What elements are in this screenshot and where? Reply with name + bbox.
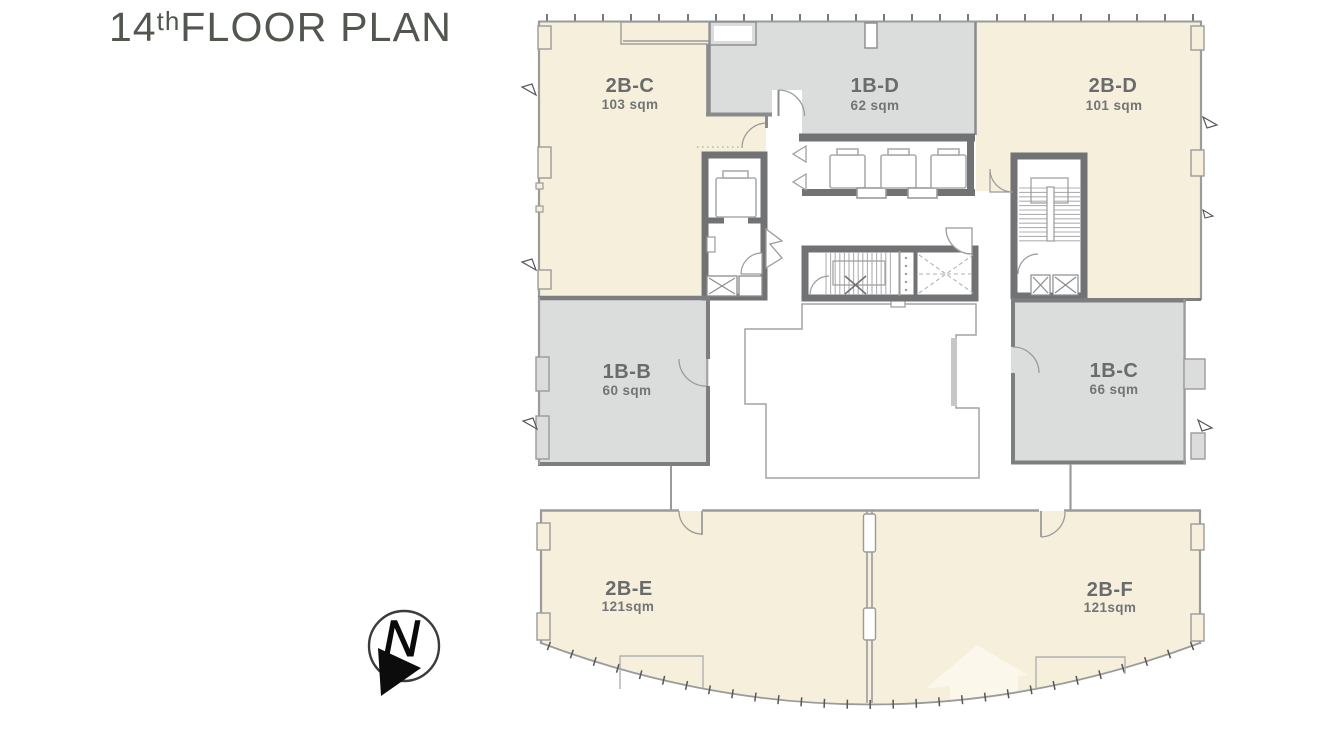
svg-text:2B-D: 2B-D	[1089, 75, 1138, 97]
svg-text:101 sqm: 101 sqm	[1086, 98, 1143, 113]
svg-text:66 sqm: 66 sqm	[1090, 382, 1139, 397]
svg-text:2B-C: 2B-C	[606, 75, 655, 97]
svg-text:121sqm: 121sqm	[602, 599, 655, 614]
svg-text:14thFLOOR PLAN: 14thFLOOR PLAN	[109, 4, 452, 50]
svg-text:2B-F: 2B-F	[1087, 579, 1133, 601]
svg-text:1B-D: 1B-D	[851, 75, 900, 97]
svg-text:1B-B: 1B-B	[603, 361, 652, 383]
svg-text:1B-C: 1B-C	[1090, 360, 1139, 382]
svg-text:103 sqm: 103 sqm	[602, 97, 659, 112]
svg-text:121sqm: 121sqm	[1084, 600, 1137, 615]
svg-text:62 sqm: 62 sqm	[851, 98, 900, 113]
svg-text:2B-E: 2B-E	[605, 578, 653, 600]
svg-text:60 sqm: 60 sqm	[603, 383, 652, 398]
